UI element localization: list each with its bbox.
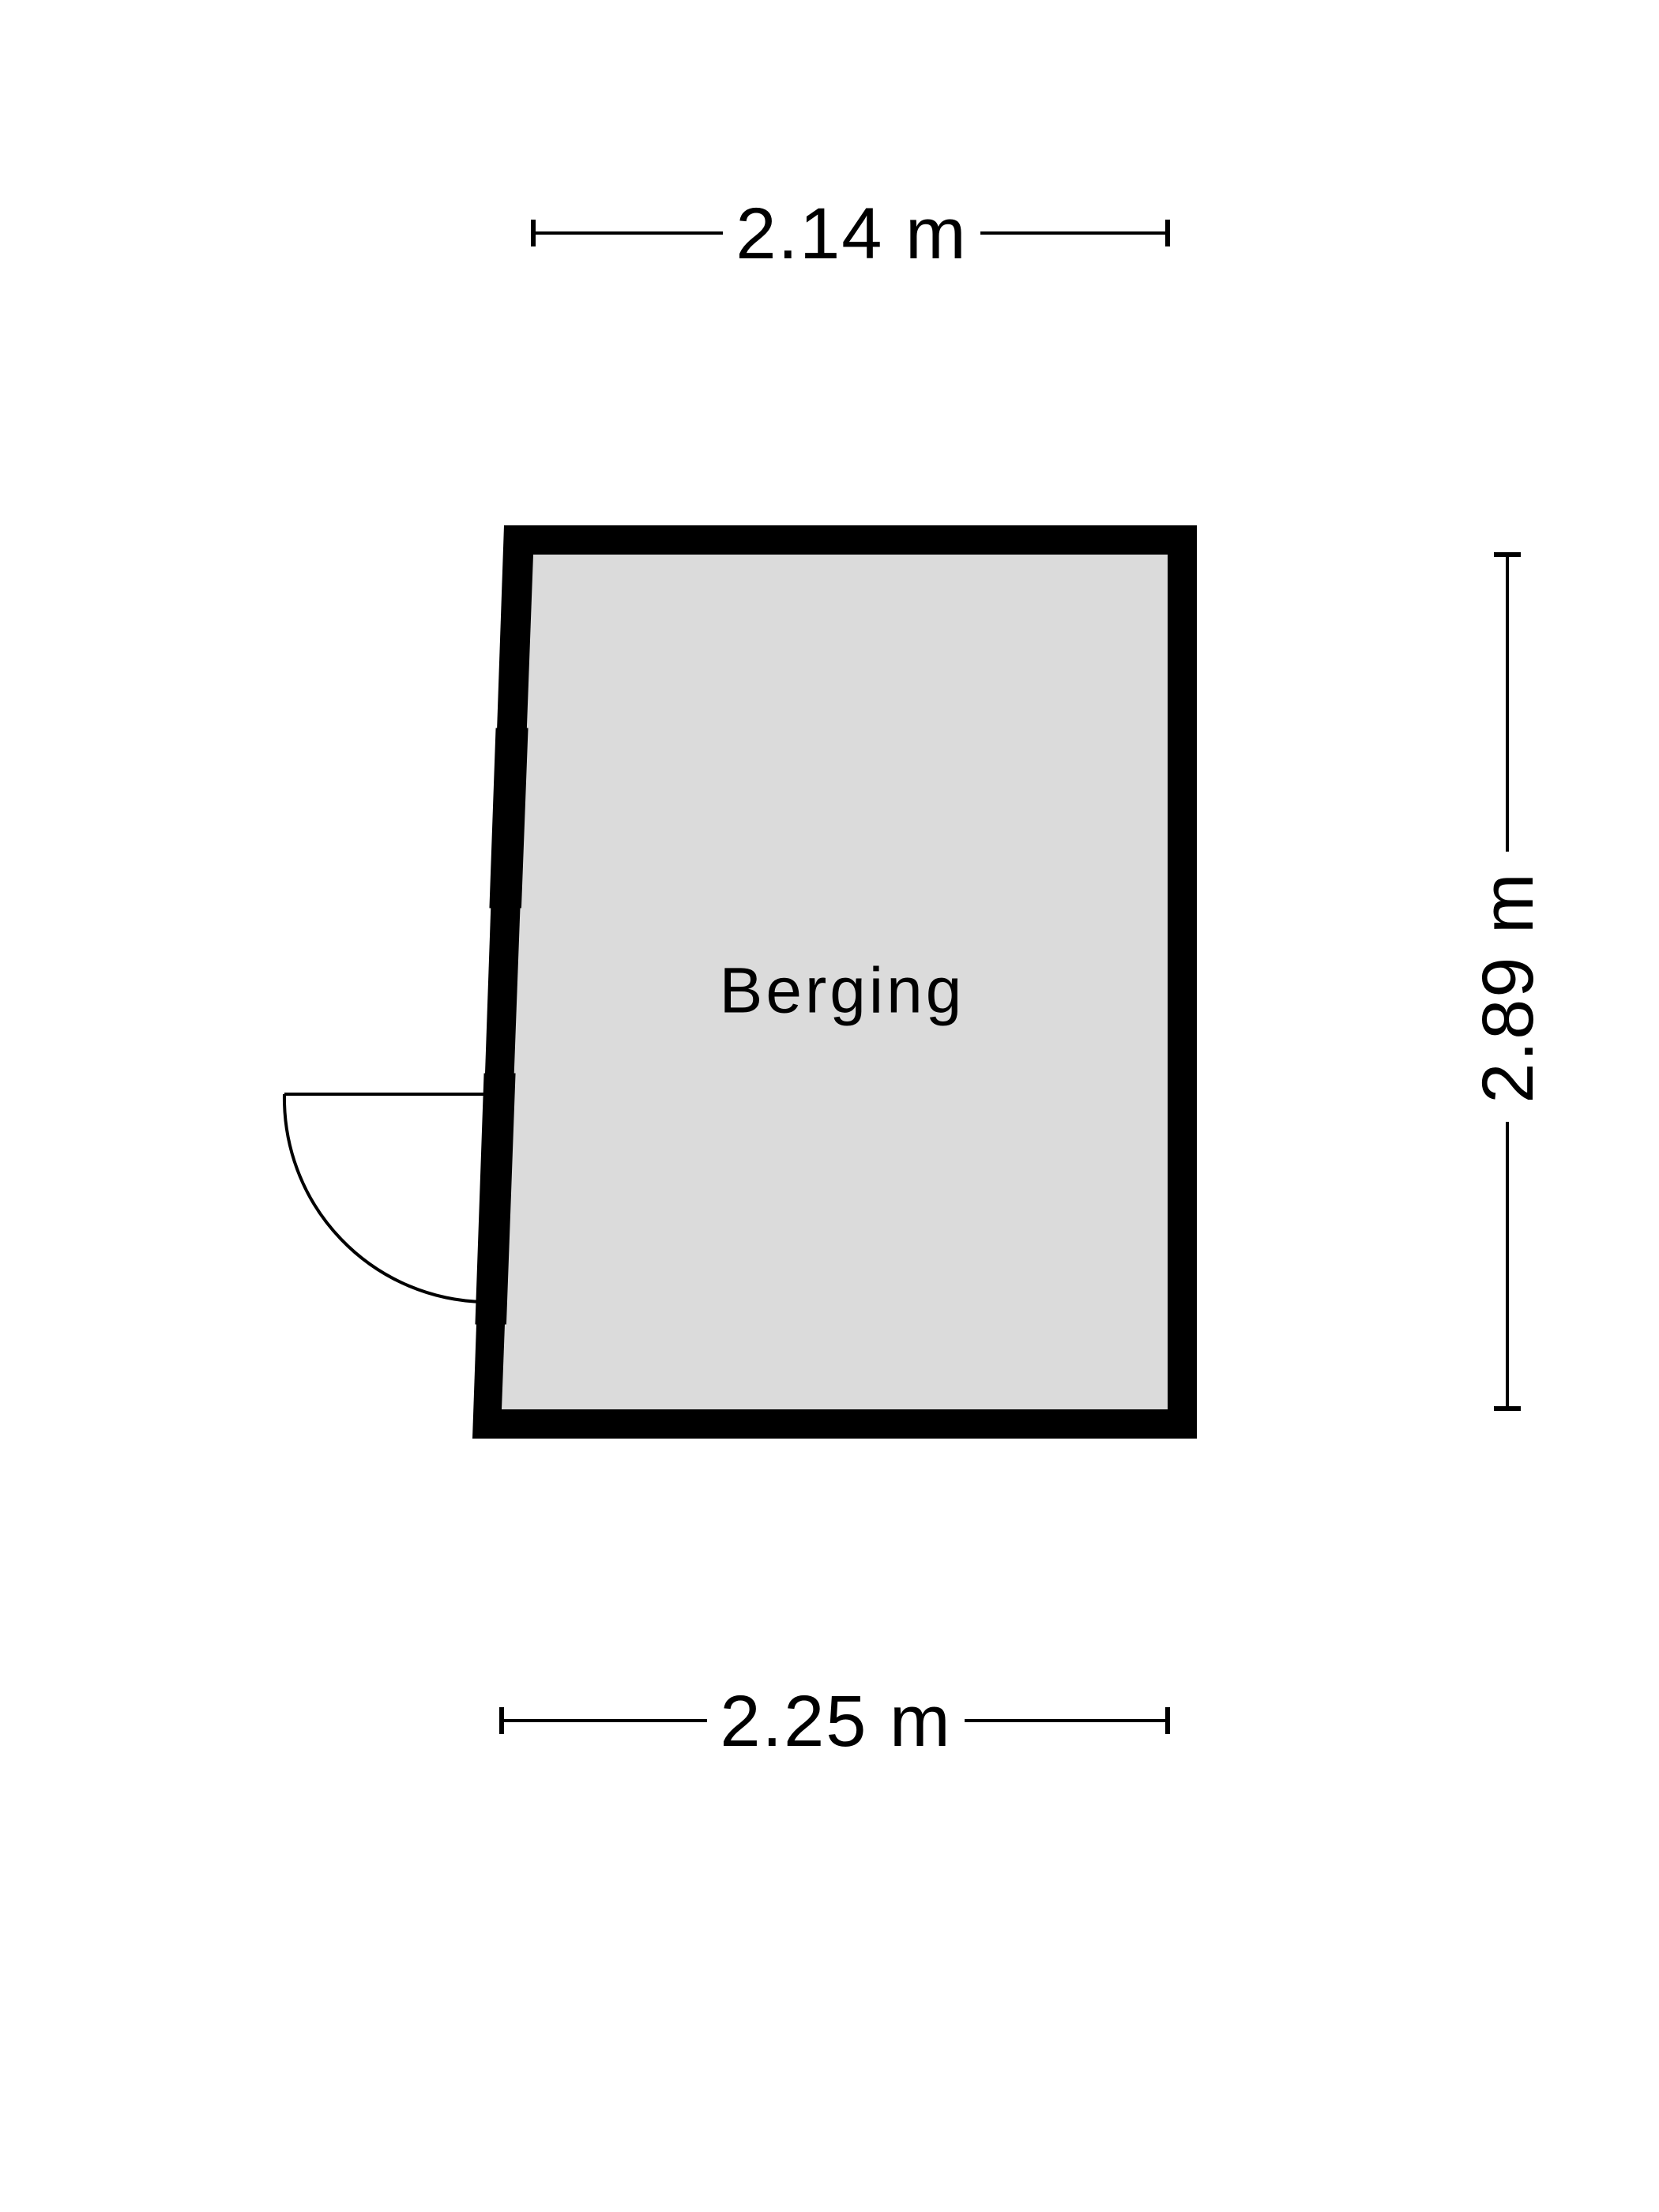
room-name-label: Berging: [720, 955, 965, 1027]
dimension-right: 2.89 m: [1468, 555, 1548, 1409]
door-swing-arc: [284, 1094, 483, 1302]
dimension-top: 2.14 m: [533, 194, 1168, 274]
dimension-top-label: 2.14 m: [735, 194, 967, 274]
floorplan-canvas: 2.14 m 2.89 m 2.25 m Berging: [0, 0, 1659, 2212]
dimension-bottom: 2.25 m: [502, 1681, 1168, 1762]
floorplan-page: 2.14 m 2.89 m 2.25 m Berging: [0, 0, 1659, 2212]
dimension-bottom-label: 2.25 m: [720, 1681, 951, 1762]
dimension-right-label: 2.89 m: [1468, 871, 1548, 1103]
